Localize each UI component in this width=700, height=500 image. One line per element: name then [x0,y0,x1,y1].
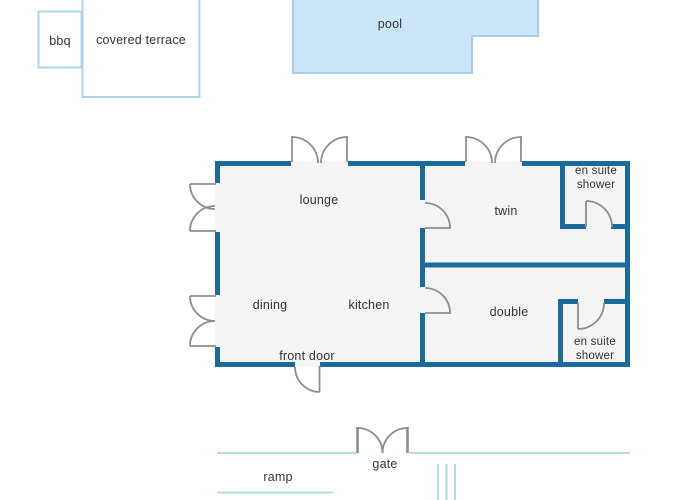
label-front-door: front door [279,349,335,363]
label-gate: gate [372,457,397,471]
steps-lines [438,464,455,500]
twin-patio-door [466,136,521,163]
floor-plan-drawing [0,0,700,500]
label-covered-terrace: covered terrace [96,33,186,47]
label-ramp: ramp [263,470,292,484]
dining-side-door [190,296,216,346]
pool-shape [293,0,538,73]
gate-swing [358,427,408,453]
floor-plan: bbq covered terrace pool lounge twin din… [0,0,700,500]
covered-terrace-outline [83,0,200,97]
label-ensuite-top: en suite shower [564,165,628,193]
label-pool: pool [378,17,402,31]
label-double: double [490,305,529,319]
label-twin: twin [494,204,517,218]
label-kitchen: kitchen [348,298,389,312]
label-bbq: bbq [49,34,70,48]
front-door-swing [295,366,320,392]
garden-features [217,427,630,500]
lounge-side-door [190,184,216,231]
label-dining: dining [253,298,288,312]
label-ensuite-bottom: en suite shower [563,336,627,364]
lounge-patio-door [292,136,347,163]
label-lounge: lounge [300,193,339,207]
